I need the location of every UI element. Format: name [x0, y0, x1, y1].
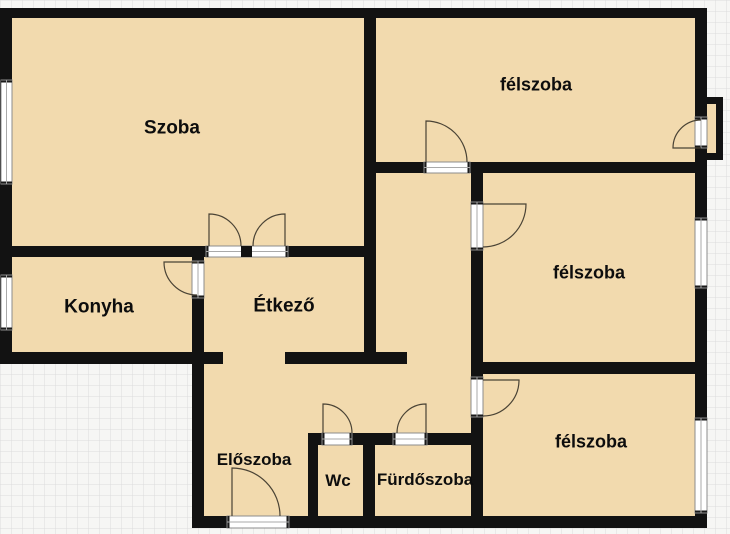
wall [716, 97, 723, 160]
wall [0, 352, 223, 364]
floor-plan-page: Szoba félszoba félszoba félszoba Konyha … [0, 0, 730, 534]
wall [471, 362, 707, 374]
wall [0, 8, 707, 18]
wall [364, 8, 376, 364]
wall [701, 153, 723, 160]
room-label-etkezo: Étkező [253, 295, 314, 317]
wall [308, 445, 318, 528]
room-label-felszoba-top: félszoba [500, 74, 573, 94]
room-label-felszoba-bottom: félszoba [555, 431, 628, 451]
room-label-eloszoba: Előszoba [217, 450, 292, 469]
double-door-center-post [241, 246, 252, 257]
floor-plan-canvas: Szoba félszoba félszoba félszoba Konyha … [0, 0, 730, 534]
wall [363, 445, 375, 528]
room-label-szoba: Szoba [144, 118, 200, 139]
room-label-konyha: Konyha [64, 297, 134, 318]
wall [0, 246, 376, 257]
room-label-wc: Wc [325, 471, 351, 490]
room-label-furdoszoba: Fürdőszoba [377, 470, 474, 489]
wall [364, 162, 707, 173]
wall [285, 352, 407, 364]
room-label-felszoba-middle: félszoba [553, 262, 626, 282]
